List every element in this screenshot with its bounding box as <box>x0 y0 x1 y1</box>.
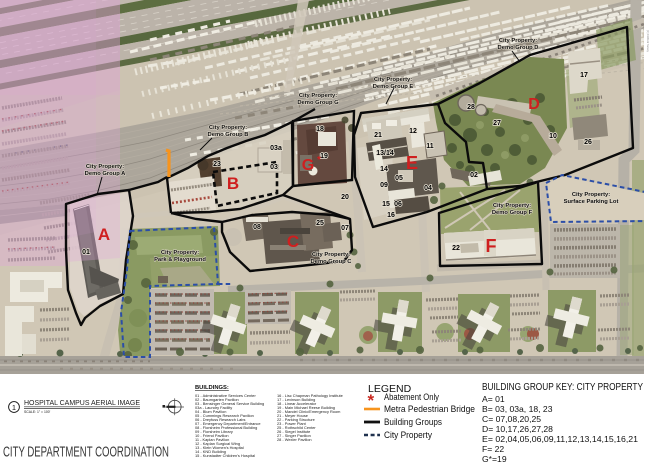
svg-text:City Property:: City Property: <box>374 77 412 83</box>
svg-text:C= 07,08,20,25: C= 07,08,20,25 <box>482 414 541 424</box>
svg-text:03: 03 <box>270 164 278 171</box>
svg-text:City Property:: City Property: <box>299 93 337 99</box>
svg-text:D= 10,17,26,27,28: D= 10,17,26,27,28 <box>482 424 553 434</box>
svg-text:CITY DEPARTMENT COORDINATION: CITY DEPARTMENT COORDINATION <box>3 445 169 461</box>
svg-text:D: D <box>528 96 540 113</box>
svg-text:03a: 03a <box>270 145 282 152</box>
svg-text:15 - Kunstadter Children's Ho: 15 - Kunstadter Children's Hospital <box>195 453 255 458</box>
svg-text:E= 02,04,05,06,09,11,12,13,14,: E= 02,04,05,06,09,11,12,13,14,15,16,21 <box>482 434 638 444</box>
svg-text:13/14: 13/14 <box>376 150 394 157</box>
svg-text:BUILDINGS:: BUILDINGS: <box>195 385 229 391</box>
svg-text:05: 05 <box>395 175 403 182</box>
svg-text:Demo Group C: Demo Group C <box>311 259 353 265</box>
svg-text:02: 02 <box>470 172 478 179</box>
svg-text:Demo Group F: Demo Group F <box>492 210 533 216</box>
svg-text:18: 18 <box>316 126 324 133</box>
svg-text:City Property:: City Property: <box>572 192 610 198</box>
svg-text:A: A <box>98 225 110 244</box>
svg-text:(C) 1999 Air Survey: (C) 1999 Air Survey <box>646 30 649 53</box>
svg-text:27: 27 <box>493 120 501 127</box>
svg-text:*: * <box>368 391 375 410</box>
svg-text:City Property:: City Property: <box>499 38 537 44</box>
svg-text:A= 01: A= 01 <box>482 394 505 404</box>
svg-text:*: * <box>317 155 321 166</box>
svg-text:F: F <box>486 236 497 256</box>
svg-text:08: 08 <box>253 224 261 231</box>
svg-text:G*=19: G*=19 <box>482 454 507 464</box>
svg-text:City Property:: City Property: <box>161 250 199 256</box>
svg-text:01: 01 <box>82 249 90 256</box>
svg-text:Building Groups: Building Groups <box>384 417 443 427</box>
svg-text:B= 03, 03a, 18, 23: B= 03, 03a, 18, 23 <box>482 404 553 414</box>
svg-text:09: 09 <box>380 182 388 189</box>
svg-text:15: 15 <box>382 201 390 208</box>
svg-text:06: 06 <box>394 201 402 208</box>
svg-text:Demo Group B: Demo Group B <box>208 132 249 138</box>
svg-text:20: 20 <box>341 194 349 201</box>
svg-text:1: 1 <box>12 403 16 412</box>
svg-text:26: 26 <box>584 139 592 146</box>
svg-text:16: 16 <box>387 212 395 219</box>
svg-text:City Property: City Property <box>384 430 433 440</box>
svg-text:City Property:: City Property: <box>312 252 350 258</box>
svg-text:19: 19 <box>320 153 328 160</box>
svg-text:23: 23 <box>213 161 221 168</box>
svg-text:F= 22: F= 22 <box>482 444 504 454</box>
svg-text:28 - Wexler Pavilion: 28 - Wexler Pavilion <box>277 437 312 442</box>
svg-text:Demo Group A: Demo Group A <box>85 171 126 177</box>
svg-text:City Property:: City Property: <box>209 125 247 131</box>
svg-text:Surface Parking Lot: Surface Parking Lot <box>564 199 619 205</box>
svg-text:BUILDING GROUP KEY: CITY PROPE: BUILDING GROUP KEY: CITY PROPERTY <box>482 382 643 393</box>
svg-text:City Property:: City Property: <box>493 203 531 209</box>
svg-text:21: 21 <box>374 132 382 139</box>
svg-text:Demo Group G: Demo Group G <box>297 100 339 106</box>
svg-text:07: 07 <box>341 225 349 232</box>
svg-text:22: 22 <box>452 245 460 252</box>
svg-text:Metra Pedestrian Bridge: Metra Pedestrian Bridge <box>384 404 475 414</box>
svg-text:Abatement Only: Abatement Only <box>384 392 440 402</box>
svg-text:Demo Group D: Demo Group D <box>498 45 539 51</box>
svg-text:SCALE: 1" = 100': SCALE: 1" = 100' <box>24 410 51 414</box>
svg-text:25: 25 <box>316 220 324 227</box>
svg-text:17: 17 <box>580 72 588 79</box>
svg-text:14: 14 <box>380 166 388 173</box>
svg-text:28: 28 <box>467 104 475 111</box>
svg-text:11: 11 <box>426 143 434 150</box>
svg-text:Park & Playground: Park & Playground <box>154 257 206 263</box>
svg-text:10: 10 <box>549 133 557 140</box>
svg-text:12: 12 <box>409 128 417 135</box>
svg-text:B: B <box>227 174 239 193</box>
svg-text:C: C <box>287 232 299 251</box>
svg-text:04: 04 <box>424 185 432 192</box>
svg-text:City Property:: City Property: <box>86 164 124 170</box>
svg-text:HOSPITAL CAMPUS AERIAL IMAGE: HOSPITAL CAMPUS AERIAL IMAGE <box>24 398 140 407</box>
svg-text:G: G <box>302 157 314 174</box>
svg-text:E: E <box>406 153 418 173</box>
